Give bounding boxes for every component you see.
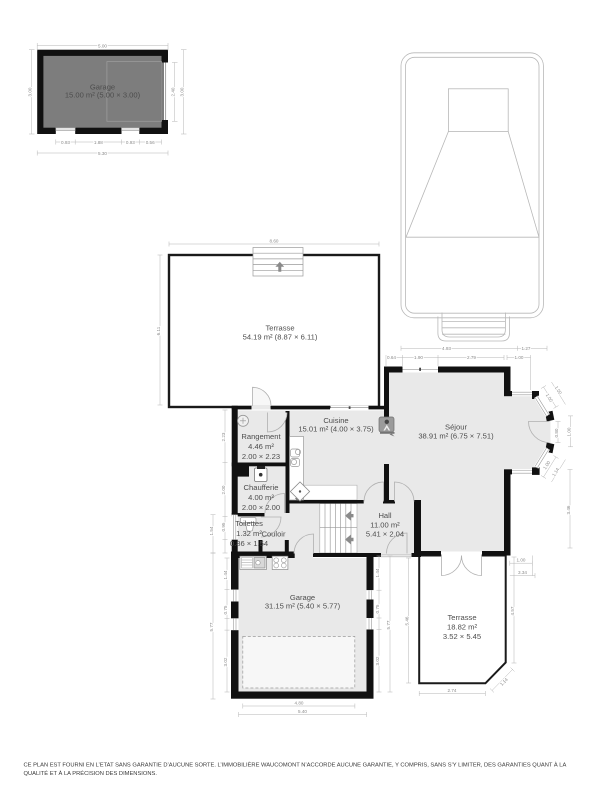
svg-text:38.91 m² (6.75 × 7.51): 38.91 m² (6.75 × 7.51) [418, 432, 494, 441]
svg-text:1.00: 1.00 [517, 558, 526, 563]
svg-text:4.80: 4.80 [295, 701, 304, 706]
svg-text:5.77: 5.77 [386, 620, 391, 629]
svg-text:2.00 × 2.23: 2.00 × 2.23 [242, 452, 280, 461]
svg-text:1.32 m²: 1.32 m² [236, 529, 262, 538]
svg-text:5.46: 5.46 [405, 616, 410, 625]
svg-text:5.30: 5.30 [98, 151, 107, 156]
svg-text:0.93: 0.93 [126, 140, 135, 145]
svg-text:6.11: 6.11 [156, 326, 161, 335]
svg-text:5.40: 5.40 [298, 709, 307, 714]
svg-text:Séjour: Séjour [445, 423, 467, 432]
svg-text:3.00: 3.00 [180, 87, 185, 96]
svg-text:0.75: 0.75 [375, 604, 380, 613]
svg-text:3.00: 3.00 [28, 87, 33, 96]
svg-text:3.02: 3.02 [223, 657, 228, 666]
svg-text:QUALITÉ ET À LA PRÉCISION DES: QUALITÉ ET À LA PRÉCISION DES DIMENSIONS… [24, 770, 158, 777]
svg-text:2.23: 2.23 [221, 432, 226, 441]
svg-text:15.00 m² (5.00 × 3.00): 15.00 m² (5.00 × 3.00) [65, 91, 141, 100]
svg-text:18.82 m²: 18.82 m² [447, 623, 477, 632]
svg-text:5.00: 5.00 [98, 44, 107, 49]
svg-text:0.86 × 1.54: 0.86 × 1.54 [230, 539, 268, 548]
svg-text:2.40: 2.40 [171, 87, 176, 96]
svg-text:0.95: 0.95 [221, 522, 226, 531]
svg-text:2.00 × 2.00: 2.00 × 2.00 [242, 503, 280, 512]
svg-text:54.19 m² (8.87 × 6.11): 54.19 m² (8.87 × 6.11) [243, 333, 318, 342]
svg-text:Terrasse: Terrasse [447, 613, 476, 622]
svg-text:0.93: 0.93 [61, 140, 70, 145]
svg-text:1.27: 1.27 [522, 346, 531, 351]
svg-text:1.54: 1.54 [209, 526, 214, 535]
svg-text:Terrasse: Terrasse [265, 324, 294, 333]
svg-text:3.52 × 5.45: 3.52 × 5.45 [443, 632, 481, 641]
svg-text:1.90: 1.90 [414, 355, 423, 360]
svg-text:1.44: 1.44 [223, 570, 228, 579]
svg-text:3.34: 3.34 [518, 570, 527, 575]
svg-text:15.01 m² (4.00 × 3.75): 15.01 m² (4.00 × 3.75) [298, 424, 374, 433]
svg-text:1.88: 1.88 [94, 140, 103, 145]
svg-text:2.00: 2.00 [221, 485, 226, 494]
svg-text:0.64: 0.64 [387, 355, 396, 360]
svg-text:0.56: 0.56 [146, 140, 155, 145]
svg-text:Rangement: Rangement [241, 432, 281, 441]
svg-text:8.60: 8.60 [270, 239, 279, 244]
svg-text:Chaufferie: Chaufferie [244, 483, 279, 492]
svg-text:1.00: 1.00 [515, 355, 524, 360]
svg-text:Couloir: Couloir [261, 530, 286, 539]
svg-text:3.46: 3.46 [566, 505, 571, 514]
svg-text:CE PLAN EST FOURNI EN L’ETAT S: CE PLAN EST FOURNI EN L’ETAT SANS GARANT… [24, 762, 567, 769]
svg-text:5.41 × 2.04: 5.41 × 2.04 [366, 530, 404, 539]
svg-text:2.74: 2.74 [448, 688, 457, 693]
svg-text:2.79: 2.79 [467, 355, 476, 360]
svg-text:0.80: 0.80 [554, 428, 559, 437]
svg-text:4.57: 4.57 [510, 606, 515, 615]
svg-text:Toilettes: Toilettes [235, 519, 263, 528]
svg-text:3.02: 3.02 [375, 656, 380, 665]
svg-text:4.00 m²: 4.00 m² [248, 493, 274, 502]
svg-text:1.44: 1.44 [375, 568, 380, 577]
svg-text:1.00: 1.00 [567, 427, 572, 436]
svg-text:4.46 m²: 4.46 m² [248, 442, 274, 451]
svg-text:0.75: 0.75 [223, 605, 228, 614]
svg-text:11.00 m²: 11.00 m² [370, 520, 400, 529]
svg-text:4.93: 4.93 [442, 346, 451, 351]
svg-text:5.77: 5.77 [209, 622, 214, 631]
svg-text:Hall: Hall [378, 511, 391, 520]
svg-text:31.15 m² (5.40 × 5.77): 31.15 m² (5.40 × 5.77) [265, 602, 341, 611]
